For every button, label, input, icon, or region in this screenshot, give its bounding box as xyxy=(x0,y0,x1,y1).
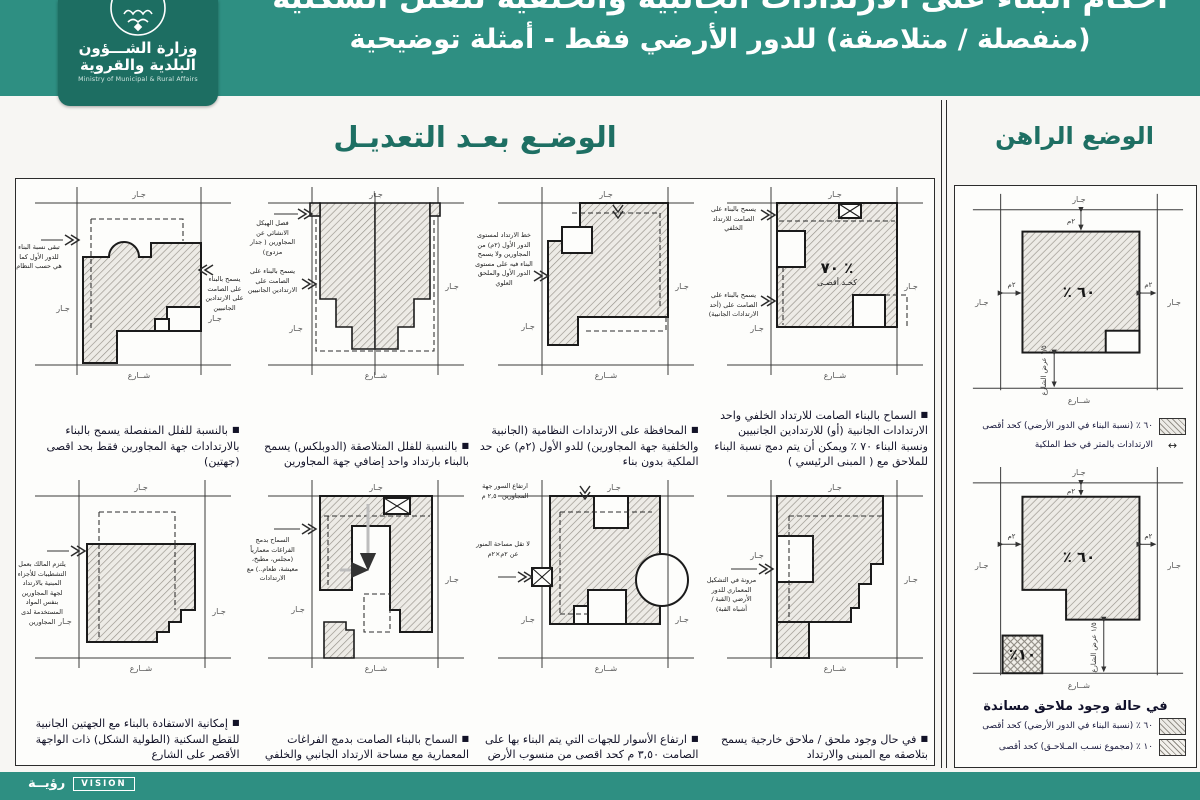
svg-text:شــارع: شــارع xyxy=(1068,681,1090,690)
vision-logo: رؤيــة VISION xyxy=(28,776,135,791)
street-label: شــارع xyxy=(824,371,847,380)
annotation: يسمح بالبناء على الصامت على الارتدادين ا… xyxy=(246,267,300,296)
legend-row: ٦٠ ٪ (نسبة البناء في الدور الأرضي) كحد أ… xyxy=(965,418,1186,435)
diagram-caption: ■بالنسبة للفلل المتلاصقة (الدوبلكس) يسمح… xyxy=(250,439,470,470)
diagram-caption: ■ارتفاع الأسوار للجهات التي يتم البناء ب… xyxy=(479,732,699,763)
page-title: أحكام البناء على الارتدادات الجانبية وال… xyxy=(250,0,1190,62)
svg-text:جـار: جـار xyxy=(290,605,305,614)
svg-text:جـار: جـار xyxy=(131,190,146,199)
svg-text:جـار: جـار xyxy=(674,615,689,624)
title-line-2: (منفصلة / متلاصقة) للدور الأرضي فقط - أم… xyxy=(250,18,1190,62)
svg-text:جـار: جـار xyxy=(749,324,764,333)
diagram-cell-m8: جـار جـار جـار شــارع يلتزم المالك بعمل … xyxy=(16,472,246,765)
legend-current-1: ٦٠ ٪ (نسبة البناء في الدور الأرضي) كحد أ… xyxy=(955,418,1196,453)
svg-text:جـار: جـار xyxy=(288,324,303,333)
legend-row: ٦٠ ٪ (نسبة البناء في الدور الأرضي) كحد أ… xyxy=(965,718,1186,735)
annotation: لا تقل مساحة المنور عن ٢م×٢م xyxy=(475,540,531,559)
current-block-2: ٢م ٢م ٢م ٪١٠ ١/٥ عرض الشارع ٪ ٦٠ جـار جـ… xyxy=(955,461,1196,756)
svg-text:شــارع: شــارع xyxy=(127,371,150,380)
diagram-grid: ٪ ٧٠ كحـد أقصـى جـار جـار جـار شــارع يس… xyxy=(16,179,934,765)
legend-row: ١٠ ٪ (مجموع نسـب المـلاحـق) كحد أقصى xyxy=(965,739,1186,756)
svg-text:جـار: جـار xyxy=(1166,298,1181,307)
footer-band: رؤيــة VISION xyxy=(0,772,1200,800)
svg-text:جـار: جـار xyxy=(1071,468,1086,477)
svg-text:١/٥ عرض الشارع: ١/٥ عرض الشارع xyxy=(1040,345,1048,396)
svg-text:١/٥ عرض الشارع: ١/٥ عرض الشارع xyxy=(1090,622,1098,673)
svg-text:جـار: جـار xyxy=(368,190,383,199)
infographic-page: أحكام البناء على الارتدادات الجانبية وال… xyxy=(0,0,1200,800)
annotation: يسمح بالبناء على الصامت على الارتدادين ا… xyxy=(204,275,246,313)
svg-text:جـار: جـار xyxy=(903,575,918,584)
svg-text:جـار: جـار xyxy=(211,607,226,616)
annotation: يسمح بالبناء على الصامت على (أحد الارتدا… xyxy=(706,291,762,320)
svg-text:٢م: ٢م xyxy=(1008,532,1016,540)
diagram-caption: ■السماح بالبناء الصامت للارتداد الخلفي و… xyxy=(709,408,929,470)
svg-text:جـار: جـار xyxy=(827,483,842,492)
ratio-label: ٪ ٦٠ xyxy=(1063,548,1095,566)
svg-text:كحـد أقصـى: كحـد أقصـى xyxy=(817,277,857,287)
diagram-caption: ■المحافظة على الارتدادات النظامية (الجان… xyxy=(479,423,699,470)
crosshatch-swatch-icon xyxy=(1159,739,1186,756)
section-title-current: الوضع الراهن xyxy=(952,122,1197,150)
svg-text:جـار: جـار xyxy=(1071,195,1086,204)
ministry-logo: وزارة الشـــؤون البلدية والقروية Ministr… xyxy=(58,0,218,106)
svg-text:٢م: ٢م xyxy=(1008,281,1016,289)
diagram-caption: ■في حال وجود ملحق / ملاحق خارجية يسمح بت… xyxy=(709,732,929,763)
diagram-caption: ■السماح بالبناء الصامت بدمج الفراغات الم… xyxy=(250,732,470,763)
svg-text:جـار: جـار xyxy=(903,282,918,291)
svg-text:جـار: جـار xyxy=(207,314,222,323)
svg-text:جـار: جـار xyxy=(974,298,989,307)
svg-text:شــارع: شــارع xyxy=(129,664,152,673)
svg-text:شــارع: شــارع xyxy=(594,664,617,673)
svg-text:شــارع: شــارع xyxy=(1068,396,1090,405)
diagram-cell-m4: جـار جـار جـار شــارع تبقى نسبة البناء ل… xyxy=(16,179,246,472)
ministry-name-ar-2: البلدية والقروية xyxy=(58,57,218,74)
svg-text:جـار: جـار xyxy=(55,304,70,313)
double-arrow-icon: ↔ xyxy=(1159,439,1186,453)
svg-text:شــارع: شــارع xyxy=(365,371,388,380)
svg-text:جـار: جـار xyxy=(520,322,535,331)
title-line-1: أحكام البناء على الارتدادات الجانبية وال… xyxy=(250,0,1190,18)
svg-text:جـار: جـار xyxy=(520,615,535,624)
diagram-caption: ■إمكانية الاستفادة بالبناء مع الجهتين ال… xyxy=(20,716,240,763)
annotation: فصل الهيكل الانشائي عن المجاورين ( جدار … xyxy=(246,219,300,257)
hatch-swatch-icon xyxy=(1159,418,1186,435)
diagram-cell-m5: جـار جـار جـار شــارع مرونة في التشكيل ا… xyxy=(705,472,935,765)
svg-text:شــارع: شــارع xyxy=(365,664,388,673)
svg-text:جـار: جـار xyxy=(133,483,148,492)
svg-text:جـار: جـار xyxy=(368,483,383,492)
svg-text:٢م: ٢م xyxy=(1144,281,1152,289)
annotation: يسمح بالبناء على الصامت للارتداد الخلفي xyxy=(706,205,762,234)
hatch-swatch-icon xyxy=(1159,718,1186,735)
current-situation-panel: ٢م ٢م ٢م ١/٥ عرض الشارع ٪ ٦٠ جـار جـار ج… xyxy=(954,185,1197,768)
annotation: السماح بدمج الفراغات معمارياً (مجلس، مطب… xyxy=(246,536,300,584)
svg-text:جـار: جـار xyxy=(444,282,459,291)
after-amendment-panel: ٪ ٧٠ كحـد أقصـى جـار جـار جـار شــارع يس… xyxy=(15,178,935,766)
annotation: يلتزم المالك بعمل التشطيبات للأجزاء المب… xyxy=(16,560,68,627)
diagram-cell-m7: جـار جـار جـار شــارع السماح بدمج الفراغ… xyxy=(246,472,476,765)
svg-text:جـار: جـار xyxy=(749,551,764,560)
ministry-emblem-icon xyxy=(104,0,172,42)
svg-text:شــارع: شــارع xyxy=(824,664,847,673)
diagram-cell-m3: جـار جـار جـار شــارع فصل الهيكل الانشائ… xyxy=(246,179,476,472)
plot-diagram-m6: جـار جـار جـار شــارع xyxy=(476,472,705,679)
current-block-1: ٢م ٢م ٢م ١/٥ عرض الشارع ٪ ٦٠ جـار جـار ج… xyxy=(955,186,1196,453)
section-divider xyxy=(941,100,947,768)
annotation: خط الارتداد لمستوى الدور الأول (٢م) من ا… xyxy=(475,231,533,289)
plot-diagram-current-1: ٢م ٢م ٢م ١/٥ عرض الشارع ٪ ٦٠ جـار جـار ج… xyxy=(955,186,1195,414)
svg-text:٢م: ٢م xyxy=(1067,487,1075,495)
bullet-icon: ■ xyxy=(920,410,928,419)
svg-text:جـار: جـار xyxy=(444,575,459,584)
diagram-cell-m6: جـار جـار جـار شــارع ارتفاع السور جهة ا… xyxy=(475,472,705,765)
diagram-cell-m1: ٪ ٧٠ كحـد أقصـى جـار جـار جـار شــارع يس… xyxy=(705,179,935,472)
annotation: مرونة في التشكيل المعماري للدور الأرضي (… xyxy=(705,576,759,614)
svg-text:جـار: جـار xyxy=(674,282,689,291)
legend-current-2: ٦٠ ٪ (نسبة البناء في الدور الأرضي) كحد أ… xyxy=(955,718,1196,756)
svg-text:٢م: ٢م xyxy=(1144,532,1152,540)
diagram-caption: ■بالنسبة للفلل المنفصلة يسمح بالبناء بال… xyxy=(20,423,240,470)
ministry-name-ar-1: وزارة الشـــؤون xyxy=(58,40,218,57)
ratio-label: ٪ ٦٠ xyxy=(1063,283,1095,301)
legend-row: ↔ الارتدادات بالمتر في خط الملكية xyxy=(965,439,1186,453)
ministry-name-en: Ministry of Municipal & Rural Affairs xyxy=(58,76,218,83)
annotation: ارتفاع السور جهة المجاورين ٢,٥٠ م xyxy=(477,482,533,501)
svg-text:شــارع: شــارع xyxy=(594,371,617,380)
svg-text:٢م: ٢م xyxy=(1067,218,1075,226)
vision-logo-ar: رؤيــة xyxy=(28,776,65,791)
section-title-after-amendment: الوضـع بعـد التعديـل xyxy=(15,120,935,154)
svg-text:جـار: جـار xyxy=(598,190,613,199)
diagram-cell-m2: جـار جـار جـار شــارع خط الارتداد لمستوى… xyxy=(475,179,705,472)
annex-ratio-label: ٪١٠ xyxy=(1009,645,1036,663)
ratio-label: ٪ ٧٠ xyxy=(821,259,854,277)
svg-text:جـار: جـار xyxy=(974,561,989,570)
svg-text:جـار: جـار xyxy=(1166,561,1181,570)
neighbor-label: جـار xyxy=(827,190,842,199)
plot-diagram-current-2: ٢م ٢م ٢م ٪١٠ ١/٥ عرض الشارع ٪ ٦٠ جـار جـ… xyxy=(955,461,1195,701)
svg-text:جـار: جـار xyxy=(606,483,621,492)
vision-logo-en: VISION xyxy=(73,777,134,791)
annotation: تبقى نسبة البناء للدور الأول كما هي حسب … xyxy=(16,243,62,272)
current-block-2-title: في حالة وجود ملاحق مساندة xyxy=(955,699,1196,714)
